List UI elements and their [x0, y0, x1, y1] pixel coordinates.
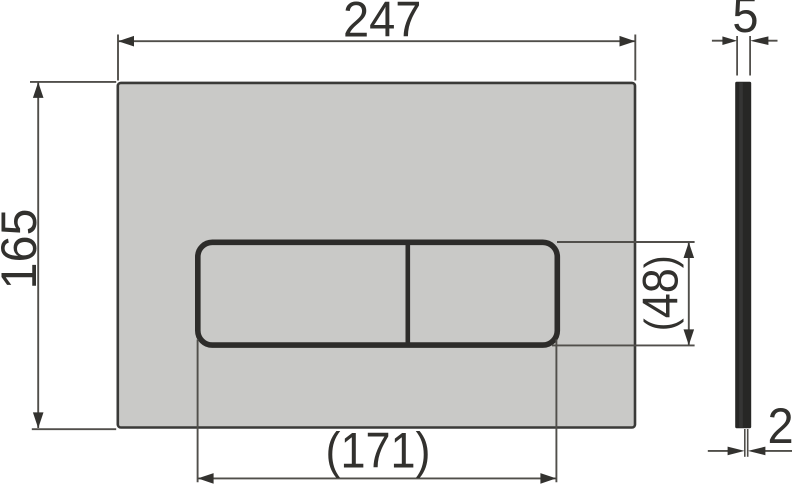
svg-text:247: 247	[343, 0, 421, 48]
svg-text:165: 165	[0, 209, 47, 290]
svg-text:(171): (171)	[325, 423, 430, 479]
svg-text:(48): (48)	[633, 255, 689, 331]
svg-text:2: 2	[767, 398, 793, 454]
svg-text:5: 5	[732, 0, 758, 43]
